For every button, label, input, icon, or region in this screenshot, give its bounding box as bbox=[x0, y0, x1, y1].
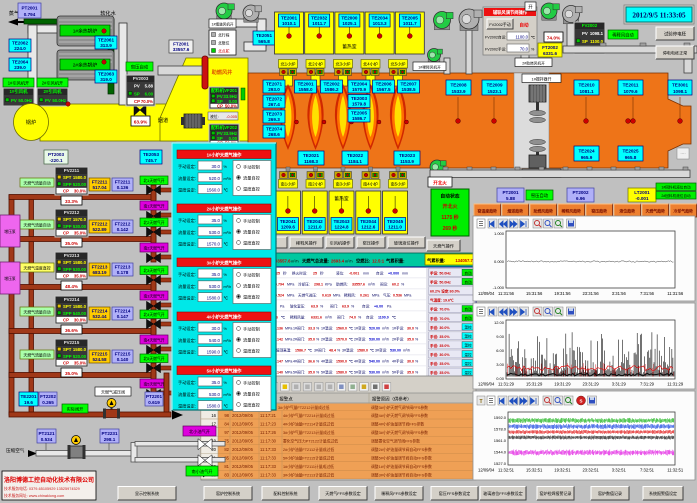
svg-text:1.000: 1.000 bbox=[494, 231, 505, 236]
svg-text:23:32:51: 23:32:51 bbox=[582, 468, 599, 473]
svg-text:阀见:: 阀见: bbox=[380, 282, 388, 287]
svg-text:流量设定:: 流量设定: bbox=[178, 391, 196, 398]
svg-text:换火时设:: 换火时设: bbox=[292, 271, 307, 276]
svg-text:1570.0: 1570.0 bbox=[207, 242, 221, 247]
svg-text:48.4%: 48.4% bbox=[65, 284, 78, 289]
svg-text:窑压趋势: 窑压趋势 bbox=[591, 209, 607, 214]
svg-text:手设: 50.0Hz: 手设: 50.0Hz bbox=[430, 280, 451, 285]
svg-text:北3天燃气开: 北3天燃气开 bbox=[143, 268, 164, 273]
svg-text:北2天燃气开: 北2天燃气开 bbox=[143, 220, 164, 225]
svg-text:调整3#小炉油量调节阀自动FFS参数: 调整3#小炉油量调节阀自动FFS参数 bbox=[371, 473, 432, 478]
svg-text:手动控制: 手动控制 bbox=[243, 217, 260, 224]
svg-text:319.0: 319.0 bbox=[100, 77, 112, 82]
svg-text:2012/09/05: 2012/09/05 bbox=[232, 464, 254, 469]
svg-text:6.00: 6.00 bbox=[496, 348, 505, 353]
svg-text:玻璃液位FFS参数设定: 玻璃液位FFS参数设定 bbox=[483, 490, 523, 496]
svg-text:84: 84 bbox=[224, 421, 229, 426]
svg-text:1570.9: 1570.9 bbox=[352, 87, 366, 92]
svg-text:PV: PV bbox=[134, 84, 140, 89]
svg-text:系统报警值设定: 系统报警值设定 bbox=[649, 490, 677, 496]
svg-text:手动控制: 手动控制 bbox=[243, 163, 260, 170]
svg-text:北4天燃气开: 北4天燃气开 bbox=[143, 312, 164, 317]
svg-text:530.00: 530.00 bbox=[390, 349, 401, 353]
svg-text:2012/09/05: 2012/09/05 bbox=[232, 438, 254, 443]
svg-text:522.89: 522.89 bbox=[92, 227, 106, 232]
svg-text:PV2212: PV2212 bbox=[64, 210, 80, 215]
svg-text:南1天燃气开: 南1天燃气开 bbox=[143, 203, 164, 208]
svg-text:0.147: 0.147 bbox=[117, 314, 129, 319]
svg-text:2#手设:: 2#手设: bbox=[392, 337, 404, 342]
svg-text:TE2042: TE2042 bbox=[307, 219, 324, 224]
svg-text:-0.001: -0.001 bbox=[635, 196, 648, 201]
svg-text:温控: 温控 bbox=[464, 370, 472, 375]
svg-text:TE2045: TE2045 bbox=[387, 219, 404, 224]
svg-text:70.0%: 70.0% bbox=[141, 99, 153, 104]
svg-text:PV2003: PV2003 bbox=[133, 76, 149, 81]
svg-text:2#引风机: 2#引风机 bbox=[43, 88, 62, 95]
svg-text:m³/h: m³/h bbox=[224, 339, 232, 343]
svg-text:手设: 35.0%: 手设: 35.0% bbox=[430, 370, 450, 375]
svg-text:Pa: Pa bbox=[280, 305, 284, 309]
svg-text:1#搅拌器开: 1#搅拌器开 bbox=[532, 77, 552, 82]
svg-text:TE2010: TE2010 bbox=[578, 82, 595, 87]
svg-text:1100.0: 1100.0 bbox=[516, 35, 529, 40]
svg-text:1586.7: 1586.7 bbox=[352, 116, 366, 121]
svg-text:天燃气减压阀: 天燃气减压阀 bbox=[101, 389, 125, 395]
svg-text:745.7: 745.7 bbox=[145, 158, 157, 163]
svg-text:1590.0: 1590.0 bbox=[336, 360, 347, 364]
svg-text:流量设定:: 流量设定: bbox=[178, 283, 196, 290]
svg-text:TE2051: TE2051 bbox=[256, 33, 273, 38]
svg-text:0.619: 0.619 bbox=[148, 400, 160, 405]
svg-text:TE2061: TE2061 bbox=[98, 37, 115, 42]
svg-text:2#余热锅炉: 2#余热锅炉 bbox=[73, 61, 98, 68]
svg-text:报警原因（供参考）: 报警原因（供参考） bbox=[372, 396, 412, 403]
svg-text:PT2201: PT2201 bbox=[146, 394, 163, 399]
svg-text:m³/h: m³/h bbox=[382, 371, 389, 375]
svg-text:6331.6: 6331.6 bbox=[311, 316, 322, 320]
svg-text:秒: 秒 bbox=[320, 271, 324, 276]
svg-text:北5天燃气开: 北5天燃气开 bbox=[143, 356, 164, 361]
svg-text:4#手设:: 4#手设: bbox=[392, 359, 404, 364]
svg-text:LT2001: LT2001 bbox=[634, 190, 650, 195]
svg-text:-0.005: -0.005 bbox=[226, 115, 237, 119]
svg-text:PT2001: PT2001 bbox=[21, 5, 38, 10]
svg-text:PV2214: PV2214 bbox=[64, 297, 80, 302]
svg-text:30.0%: 30.0% bbox=[74, 317, 86, 322]
svg-text:11:31:29: 11:31:29 bbox=[498, 382, 515, 387]
svg-text:565.8: 565.8 bbox=[258, 39, 270, 44]
svg-text:阀门:: 阀门: bbox=[330, 304, 338, 309]
svg-text:532.44: 532.44 bbox=[92, 314, 106, 319]
svg-text:11:31:56: 11:31:56 bbox=[667, 291, 684, 296]
svg-text:锅炉: 锅炉 bbox=[26, 118, 36, 126]
svg-text:MPa: MPa bbox=[404, 294, 411, 298]
svg-text:自设:: 自设: bbox=[366, 315, 374, 320]
svg-text:手动控制: 手动控制 bbox=[243, 271, 260, 278]
svg-text:1579.8: 1579.8 bbox=[352, 102, 366, 107]
svg-text:35.0%: 35.0% bbox=[65, 241, 78, 246]
svg-text:TE2009: TE2009 bbox=[486, 82, 503, 87]
svg-text:液位:: 液位: bbox=[336, 271, 344, 276]
svg-text:TE2003: TE2003 bbox=[351, 96, 368, 101]
svg-text:63.9%: 63.9% bbox=[134, 120, 148, 126]
svg-text:南3小炉: 南3小炉 bbox=[336, 181, 351, 188]
svg-text:2012/09/05: 2012/09/05 bbox=[232, 473, 254, 478]
svg-text:35.0: 35.0 bbox=[308, 338, 315, 342]
svg-text:50.0Hz: 50.0Hz bbox=[18, 98, 32, 103]
svg-text:965.9: 965.9 bbox=[581, 155, 593, 160]
svg-text:窑压自动: 窑压自动 bbox=[131, 63, 149, 70]
svg-text:m³/h: m³/h bbox=[382, 327, 389, 331]
svg-text:实际阀开: 实际阀开 bbox=[67, 405, 84, 412]
svg-text:手设: 35.0%: 手设: 35.0% bbox=[430, 343, 450, 348]
svg-text:····: ···· bbox=[680, 151, 685, 156]
svg-text:11:17:30: 11:17:30 bbox=[260, 438, 277, 443]
svg-text:30.0: 30.0 bbox=[211, 326, 220, 331]
svg-text:TE2006: TE2006 bbox=[375, 81, 392, 86]
svg-text:1010.1: 1010.1 bbox=[282, 21, 296, 26]
svg-text:30.0: 30.0 bbox=[407, 360, 414, 364]
svg-text:1544.0: 1544.0 bbox=[494, 450, 507, 455]
svg-text:窑压操作: 窑压操作 bbox=[363, 239, 381, 246]
svg-text:7:32:51: 7:32:51 bbox=[640, 468, 655, 473]
svg-text:CP: CP bbox=[63, 317, 69, 322]
svg-text:12.00: 12.00 bbox=[494, 320, 505, 325]
svg-text:1175 秒: 1175 秒 bbox=[441, 214, 458, 221]
svg-text:1580.0: 1580.0 bbox=[73, 175, 87, 180]
svg-text:北2小炉: 北2小炉 bbox=[308, 61, 323, 68]
svg-text:6331.6: 6331.6 bbox=[543, 51, 557, 56]
svg-text:3.00: 3.00 bbox=[496, 362, 505, 367]
svg-text:手动设定:: 手动设定: bbox=[178, 217, 196, 224]
svg-text:冷却压:: 冷却压: bbox=[298, 282, 310, 287]
svg-text:TE2004: TE2004 bbox=[351, 81, 368, 86]
svg-text:1560.0: 1560.0 bbox=[207, 188, 221, 193]
svg-text:12/09/04: 12/09/04 bbox=[478, 382, 495, 387]
svg-text:12/09/04: 12/09/04 bbox=[478, 291, 495, 296]
svg-text:30.0: 30.0 bbox=[211, 164, 220, 169]
svg-text:天燃气趋势: 天燃气趋势 bbox=[645, 209, 665, 214]
svg-text:11:17:33: 11:17:33 bbox=[260, 464, 277, 469]
svg-text:m³/h: m³/h bbox=[382, 360, 389, 364]
svg-text:Pa: Pa bbox=[387, 305, 391, 309]
svg-text:1209.6: 1209.6 bbox=[281, 225, 295, 230]
svg-text:稀释风趋势: 稀释风趋势 bbox=[560, 209, 581, 214]
svg-text:显示控制系统: 显示控制系统 bbox=[135, 490, 159, 496]
svg-text:温度直控: 温度直控 bbox=[243, 347, 261, 354]
svg-text:m³/h: m³/h bbox=[345, 260, 353, 264]
svg-text:调整4#小炉天燃气调节阀FFS参数: 调整4#小炉天燃气调节阀FFS参数 bbox=[371, 413, 428, 418]
svg-text:自设:: 自设: bbox=[362, 304, 370, 309]
svg-text:自动: 自动 bbox=[464, 307, 472, 312]
svg-text:1567.5: 1567.5 bbox=[376, 87, 390, 92]
svg-text:1013.3: 1013.3 bbox=[373, 21, 387, 26]
svg-text:0.536: 0.536 bbox=[393, 294, 402, 298]
svg-text:11:31:29: 11:31:29 bbox=[667, 382, 684, 387]
svg-text:TE2005: TE2005 bbox=[351, 110, 368, 115]
svg-text:35.0%: 35.0% bbox=[74, 360, 86, 365]
svg-text:调整雾化空气调节阀FFS参数: 调整雾化空气调节阀FFS参数 bbox=[371, 438, 420, 443]
svg-text:298.1: 298.1 bbox=[104, 437, 116, 442]
svg-text:增压泵: 增压泵 bbox=[4, 276, 16, 281]
svg-text:17: 17 bbox=[211, 421, 216, 426]
svg-text:1153.9: 1153.9 bbox=[400, 159, 414, 164]
svg-text:3:31:29: 3:31:29 bbox=[612, 382, 627, 387]
svg-text:调整4#小炉油量调节阀FFS参数: 调整4#小炉油量调节阀FFS参数 bbox=[371, 421, 424, 426]
svg-text:2012/9/5 11:33:05: 2012/9/5 11:33:05 bbox=[632, 12, 686, 20]
svg-text:FT2212: FT2212 bbox=[115, 221, 131, 226]
svg-text:FT2214: FT2214 bbox=[92, 308, 108, 313]
svg-text:TE2001: TE2001 bbox=[281, 15, 298, 20]
svg-text:手动设定:: 手动设定: bbox=[178, 163, 196, 170]
svg-text:CP: CP bbox=[134, 99, 140, 104]
svg-text:15:31:56: 15:31:56 bbox=[526, 291, 543, 296]
svg-text:2#小炉天燃气操作: 2#小炉天燃气操作 bbox=[207, 205, 243, 212]
svg-text:530.00: 530.00 bbox=[369, 338, 380, 342]
svg-text:36.6: 36.6 bbox=[308, 360, 315, 364]
svg-text:11:32:51: 11:32:51 bbox=[498, 468, 515, 473]
svg-text:TE2022: TE2022 bbox=[347, 153, 364, 158]
svg-text:南4小炉: 南4小炉 bbox=[363, 181, 378, 188]
svg-text:50.0Hz: 50.0Hz bbox=[52, 98, 66, 103]
svg-text:TE2021: TE2021 bbox=[303, 153, 320, 158]
svg-text:洛阳博德工控自动化技术有限公司: 洛阳博德工控自动化技术有限公司 bbox=[4, 476, 94, 484]
svg-text:调整3#小炉天燃气调节阀FFS参数: 调整3#小炉天燃气调节阀FFS参数 bbox=[371, 430, 428, 435]
svg-text:1#阀门:: 1#阀门: bbox=[293, 326, 305, 331]
svg-text:稀释风操作: 稀释风操作 bbox=[296, 239, 318, 246]
svg-text:FT2211: FT2211 bbox=[92, 179, 108, 184]
svg-text:开北火: 开北火 bbox=[442, 203, 458, 210]
svg-text:PV: PV bbox=[45, 98, 51, 103]
svg-text:81: 81 bbox=[224, 464, 229, 469]
svg-text:2012/09/05: 2012/09/05 bbox=[232, 447, 254, 452]
svg-text:MPa: MPa bbox=[287, 283, 294, 287]
svg-text:玻璃液位操作: 玻璃液位操作 bbox=[394, 239, 420, 246]
svg-text:PV: PV bbox=[11, 98, 17, 103]
svg-text:3:31:56: 3:31:56 bbox=[612, 291, 627, 296]
svg-text:9.00: 9.00 bbox=[496, 334, 505, 339]
svg-text:SPT: SPT bbox=[63, 304, 72, 309]
svg-text:温控: 温控 bbox=[464, 361, 472, 366]
svg-text:1#小炉天燃气操作: 1#小炉天燃气操作 bbox=[207, 151, 243, 158]
svg-text:0.178: 0.178 bbox=[117, 270, 129, 275]
svg-text:269.3: 269.3 bbox=[268, 117, 280, 122]
svg-text:温控: 温控 bbox=[464, 334, 472, 339]
svg-text:北行程: 北行程 bbox=[218, 33, 230, 38]
svg-text:2693.4: 2693.4 bbox=[331, 259, 345, 264]
svg-text:1#回料机液位自动: 1#回料机液位自动 bbox=[661, 185, 691, 190]
svg-text:5#变设:: 5#变设: bbox=[354, 370, 366, 375]
svg-text:SPT: SPT bbox=[63, 217, 72, 222]
svg-text:温度设定:: 温度设定: bbox=[178, 349, 196, 356]
svg-text:4#温设:: 4#温设: bbox=[321, 359, 333, 364]
svg-text:温控: 温控 bbox=[464, 343, 472, 348]
svg-text:TE2007: TE2007 bbox=[400, 81, 417, 86]
svg-text:SP: SP bbox=[134, 91, 140, 96]
svg-text:2#引风机开: 2#引风机开 bbox=[42, 79, 63, 86]
svg-text:19.6: 19.6 bbox=[24, 400, 33, 405]
svg-text:MPa: MPa bbox=[333, 294, 340, 298]
svg-text:2012/09/05: 2012/09/05 bbox=[232, 430, 254, 435]
svg-text:温控: 温控 bbox=[464, 325, 472, 330]
svg-text:530.0: 530.0 bbox=[209, 284, 221, 289]
svg-text:SPT: SPT bbox=[63, 347, 72, 352]
svg-text:7:31:29: 7:31:29 bbox=[640, 382, 655, 387]
svg-text:助燃风趋势: 助燃风趋势 bbox=[533, 209, 553, 214]
svg-text:1211.0: 1211.0 bbox=[388, 225, 402, 230]
svg-text:手设: 70.0%: 手设: 70.0% bbox=[430, 307, 450, 312]
svg-text:试验停电柸: 试验停电柸 bbox=[664, 30, 687, 37]
svg-text:SPP: SPP bbox=[63, 311, 72, 316]
svg-text:调整3#小炉天燃气调节阀FFS参数: 调整3#小炉天燃气调节阀FFS参数 bbox=[371, 405, 428, 410]
svg-text:TE2043: TE2043 bbox=[333, 219, 350, 224]
svg-text:TE2024: TE2024 bbox=[578, 148, 595, 153]
svg-text:南2小炉: 南2小炉 bbox=[308, 181, 323, 188]
svg-text:天燃气FFS参数设定: 天燃气FFS参数设定 bbox=[325, 490, 361, 496]
svg-text:298.1: 298.1 bbox=[314, 283, 323, 287]
svg-text:FT2215: FT2215 bbox=[92, 351, 108, 356]
svg-text:1560.0: 1560.0 bbox=[336, 327, 347, 331]
svg-text:60.2% 设定:60.0%: 60.2% 设定:60.0% bbox=[430, 289, 461, 294]
svg-text:液位:: 液位: bbox=[210, 114, 219, 119]
svg-text:温控: 温控 bbox=[464, 352, 472, 357]
svg-text:手设: 35.0%: 手设: 35.0% bbox=[430, 361, 450, 366]
svg-text:1561.0: 1561.0 bbox=[494, 438, 507, 443]
svg-text:11:17:26: 11:17:26 bbox=[260, 430, 277, 435]
svg-text:74.0: 74.0 bbox=[349, 316, 356, 320]
svg-text:℃: ℃ bbox=[224, 243, 229, 247]
svg-text:自动: 自动 bbox=[464, 279, 472, 284]
svg-text:TE2072: TE2072 bbox=[266, 96, 283, 101]
svg-text:手动设定:: 手动设定: bbox=[178, 271, 196, 278]
svg-text:540.0: 540.0 bbox=[209, 338, 221, 343]
svg-text:PV2213: PV2213 bbox=[64, 253, 80, 258]
svg-text:-1.000: -1.000 bbox=[493, 285, 505, 290]
svg-text:5.88: 5.88 bbox=[506, 196, 515, 201]
svg-text:224.0: 224.0 bbox=[14, 46, 26, 51]
svg-text:FT2211: FT2211 bbox=[115, 179, 131, 184]
svg-text:CP: CP bbox=[63, 273, 69, 278]
svg-text:1580.0: 1580.0 bbox=[73, 260, 87, 265]
svg-text:1098.1: 1098.1 bbox=[673, 89, 687, 94]
svg-text:1580.0: 1580.0 bbox=[336, 371, 347, 375]
svg-text:35.0%: 35.0% bbox=[74, 230, 86, 235]
svg-text:m³/h: m³/h bbox=[382, 338, 389, 342]
svg-text:PT2002: PT2002 bbox=[572, 190, 589, 195]
svg-text:82: 82 bbox=[224, 447, 229, 452]
svg-text:1#小炉油量FT2111计量成过低: 1#小炉油量FT2111计量成过低 bbox=[283, 464, 334, 469]
svg-text:TE2053: TE2053 bbox=[143, 152, 160, 157]
svg-text:35.0: 35.0 bbox=[407, 338, 414, 342]
svg-text:温度直控: 温度直控 bbox=[243, 185, 261, 192]
svg-text:50.0%: 50.0% bbox=[225, 103, 237, 108]
svg-text:℃: ℃ bbox=[224, 297, 229, 301]
svg-text:520.00: 520.00 bbox=[369, 327, 380, 331]
svg-text:SPP: SPP bbox=[63, 224, 72, 229]
svg-text:PV2211: PV2211 bbox=[64, 168, 80, 173]
svg-text:2012/09/05: 2012/09/05 bbox=[232, 456, 254, 461]
svg-text:1523.1: 1523.1 bbox=[487, 89, 501, 94]
svg-text:手动设定:: 手动设定: bbox=[178, 325, 196, 332]
svg-text:TE2002: TE2002 bbox=[323, 81, 340, 86]
svg-text:南5天燃气开: 南5天燃气开 bbox=[143, 381, 164, 386]
svg-text:引风机操作: 引风机操作 bbox=[330, 239, 352, 246]
svg-text:1098.1: 1098.1 bbox=[590, 31, 604, 36]
svg-text:1538.5: 1538.5 bbox=[401, 87, 415, 92]
svg-text:1011.7: 1011.7 bbox=[403, 21, 417, 26]
svg-text:FT2002: FT2002 bbox=[542, 45, 558, 50]
svg-text:5.88: 5.88 bbox=[145, 84, 154, 89]
svg-text:温度设定:: 温度设定: bbox=[178, 295, 196, 302]
svg-text:4#小炉油量FT2114计量成过低: 4#小炉油量FT2114计量成过低 bbox=[283, 421, 334, 426]
svg-text:m³/h: m³/h bbox=[224, 231, 232, 235]
svg-text:524.58: 524.58 bbox=[92, 357, 106, 362]
svg-text:手设: 50.0Hz: 手设: 50.0Hz bbox=[430, 271, 451, 276]
svg-text:2#小炉油量FT2112计量成过低: 2#小炉油量FT2112计量成过低 bbox=[283, 447, 334, 452]
svg-text:3#变设:: 3#变设: bbox=[375, 348, 387, 353]
svg-text:FV2002手设:: FV2002手设: bbox=[485, 47, 506, 52]
svg-text:FT2001: FT2001 bbox=[173, 41, 189, 46]
svg-text:FT2202: FT2202 bbox=[40, 394, 56, 399]
svg-text:1558.0: 1558.0 bbox=[298, 87, 312, 92]
svg-text:TE2023: TE2023 bbox=[399, 153, 416, 158]
svg-text:自动状态: 自动状态 bbox=[440, 193, 459, 200]
svg-text:5#小炉油量FT2115计量成过低: 5#小炉油量FT2115计量成过低 bbox=[283, 456, 334, 461]
svg-text:3:32:51: 3:32:51 bbox=[612, 468, 627, 473]
svg-text:0.000: 0.000 bbox=[494, 259, 505, 264]
svg-text:流量设定:: 流量设定: bbox=[178, 175, 196, 182]
svg-text:压缩空气: 压缩空气 bbox=[6, 447, 25, 454]
svg-text:2012/09/05: 2012/09/05 bbox=[232, 413, 254, 418]
svg-text:调整5#小炉油量调节阀自动FFS参数: 调整5#小炉油量调节阀自动FFS参数 bbox=[371, 456, 432, 461]
svg-text:TE2034: TE2034 bbox=[372, 15, 389, 20]
svg-text:3#小炉天燃气操作: 3#小炉天燃气操作 bbox=[207, 259, 243, 266]
svg-text:北5小炉: 北5小炉 bbox=[391, 61, 406, 68]
svg-text:63.9: 63.9 bbox=[311, 305, 318, 309]
svg-text:2#助燃风机开: 2#助燃风机开 bbox=[522, 61, 545, 66]
svg-text:TE2025: TE2025 bbox=[622, 148, 639, 153]
svg-text:1#手设:: 1#手设: bbox=[392, 326, 404, 331]
svg-text:流量设定:: 流量设定: bbox=[178, 229, 196, 236]
svg-text:70.0: 70.0 bbox=[520, 47, 529, 52]
svg-text:1025.1: 1025.1 bbox=[342, 21, 356, 26]
svg-text:FV2002自设:: FV2002自设: bbox=[485, 35, 506, 40]
svg-text:1578.0: 1578.0 bbox=[494, 427, 507, 432]
svg-text:m³/h: m³/h bbox=[403, 349, 410, 353]
svg-text:23:31:56: 23:31:56 bbox=[582, 291, 599, 296]
svg-text:35.0: 35.0 bbox=[407, 371, 414, 375]
svg-text:30.0: 30.0 bbox=[407, 327, 414, 331]
svg-text:530.00: 530.00 bbox=[73, 224, 87, 229]
svg-text:FT2214: FT2214 bbox=[115, 308, 131, 313]
svg-text:1081.1: 1081.1 bbox=[579, 89, 593, 94]
svg-text:手动设定:: 手动设定: bbox=[178, 379, 196, 386]
svg-text:33557.6: 33557.6 bbox=[275, 259, 291, 264]
svg-text:2#变设:: 2#变设: bbox=[354, 337, 366, 342]
svg-text:温度直控: 温度直控 bbox=[243, 401, 261, 408]
svg-text:天燃气温度直控: 天燃气温度直控 bbox=[23, 265, 50, 270]
svg-text:S: S bbox=[579, 399, 582, 404]
svg-text:12/09/04: 12/09/04 bbox=[478, 468, 495, 473]
svg-text:3#阀门:: 3#阀门: bbox=[314, 348, 326, 353]
svg-text:CP: CP bbox=[217, 103, 223, 108]
svg-text:北3小炉: 北3小炉 bbox=[336, 61, 351, 68]
svg-text:辅联风调节阀操作: 辅联风调节阀操作 bbox=[493, 9, 528, 16]
svg-text:SPP: SPP bbox=[63, 267, 72, 272]
svg-text:530.00: 530.00 bbox=[73, 267, 87, 272]
svg-text:33557.6: 33557.6 bbox=[173, 47, 190, 52]
